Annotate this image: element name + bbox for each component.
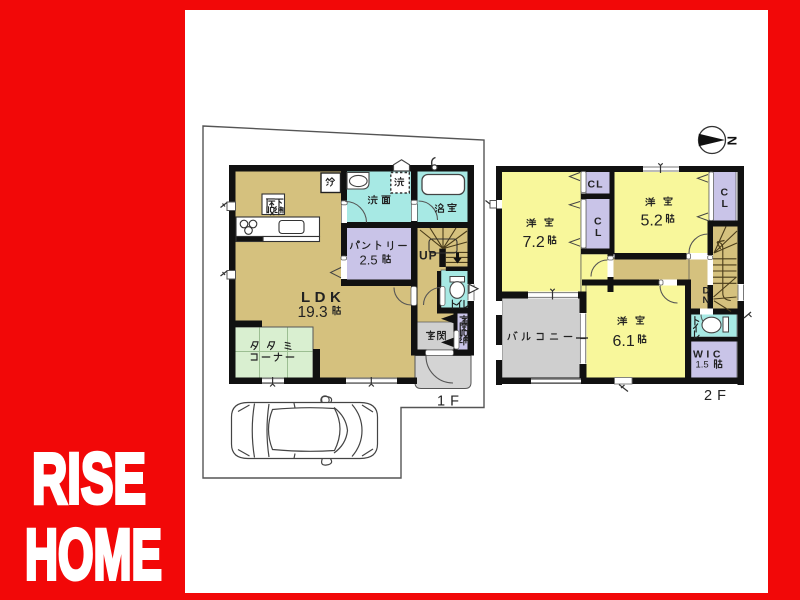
svg-text:N: N [703,295,710,306]
svg-text:1F: 1F [437,394,464,410]
svg-text:RISE: RISE [32,440,146,519]
svg-text:2F: 2F [704,388,731,404]
svg-text:UP: UP [419,249,438,263]
svg-text:C: C [721,187,729,199]
svg-text:19.3: 19.3 [298,304,328,321]
svg-text:6.1: 6.1 [613,333,635,350]
svg-text:L: L [722,198,729,210]
svg-text:N: N [725,136,740,145]
svg-text:L: L [595,227,602,239]
svg-text:CL: CL [588,179,604,191]
svg-text:5.2: 5.2 [641,213,663,230]
svg-text:7.2: 7.2 [523,234,545,251]
svg-text:2.5: 2.5 [360,253,378,268]
svg-text:1.5: 1.5 [696,360,709,371]
svg-text:HOME: HOME [25,516,162,595]
svg-text:C: C [594,216,602,228]
